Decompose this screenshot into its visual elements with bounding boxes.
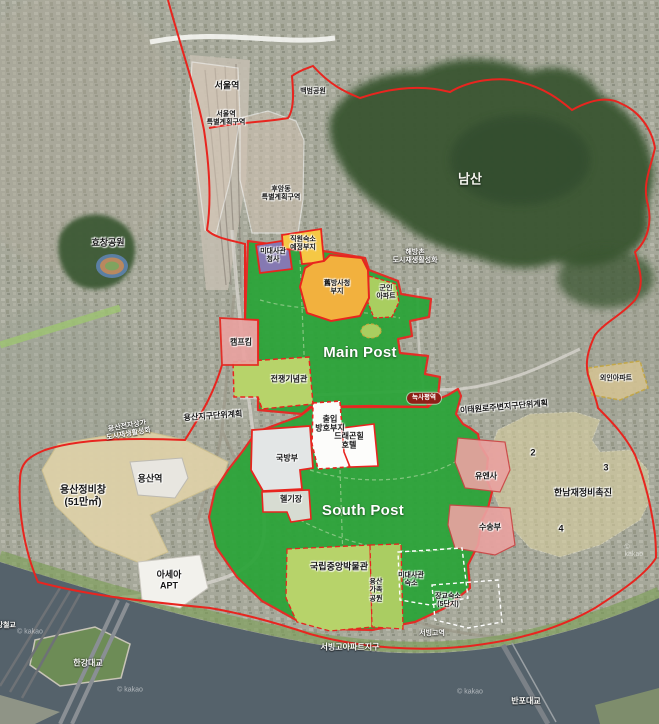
dapa-site-area (300, 255, 369, 321)
satellite-map-layers (0, 0, 659, 724)
namsan-dark-spot (450, 115, 590, 205)
unc-site-area (455, 438, 510, 492)
forest-se (558, 248, 654, 308)
national-museum-area (286, 545, 372, 631)
huam-district-area (240, 111, 304, 233)
noksapyeong-station-badge: 녹사평역 (407, 393, 441, 404)
map-canvas[interactable]: 서울역 서울역 특별계획구역 후암동 특별계획구역 백범공원 남산 해방촌 도시… (0, 0, 659, 724)
kakao-watermark: © kakao (625, 544, 648, 558)
military-site-blob (361, 324, 381, 338)
hyochang-park-area (58, 215, 135, 289)
camp-kim-area (220, 318, 258, 365)
yongsan-station-building (130, 458, 188, 498)
hyochang-stadium-field (105, 262, 119, 271)
kakao-watermark: © kakao (17, 629, 43, 636)
kakao-watermark: © kakao (457, 689, 483, 696)
kakao-watermark: © kakao (117, 687, 143, 694)
transport-unit-area (448, 505, 515, 555)
dragon-hill-hotel-area (342, 424, 378, 467)
